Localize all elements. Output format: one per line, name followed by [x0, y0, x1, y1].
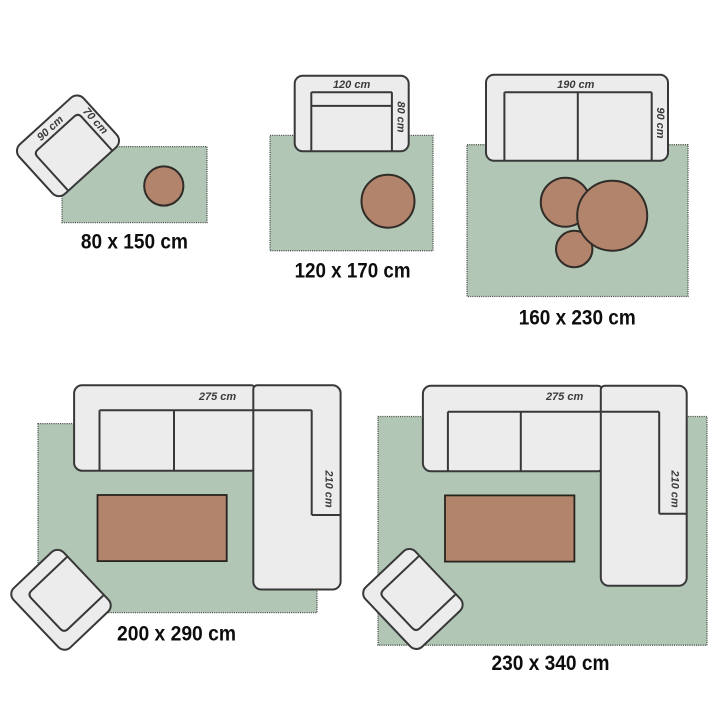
svg-text:190 cm: 190 cm [557, 79, 595, 91]
svg-text:200 x 290 cm: 200 x 290 cm [117, 621, 236, 645]
svg-text:210 cm: 210 cm [669, 469, 681, 508]
svg-text:80 cm: 80 cm [394, 101, 406, 132]
svg-text:210 cm: 210 cm [322, 469, 334, 508]
svg-text:230 x 340 cm: 230 x 340 cm [492, 651, 610, 675]
svg-text:275 cm: 275 cm [545, 391, 584, 403]
svg-text:90 cm: 90 cm [654, 107, 666, 138]
svg-text:275 cm: 275 cm [198, 391, 237, 403]
svg-text:120 x 170 cm: 120 x 170 cm [295, 258, 411, 282]
svg-text:80 x 150 cm: 80 x 150 cm [81, 229, 188, 253]
svg-text:120 cm: 120 cm [333, 79, 371, 91]
svg-text:160 x 230 cm: 160 x 230 cm [519, 306, 636, 330]
